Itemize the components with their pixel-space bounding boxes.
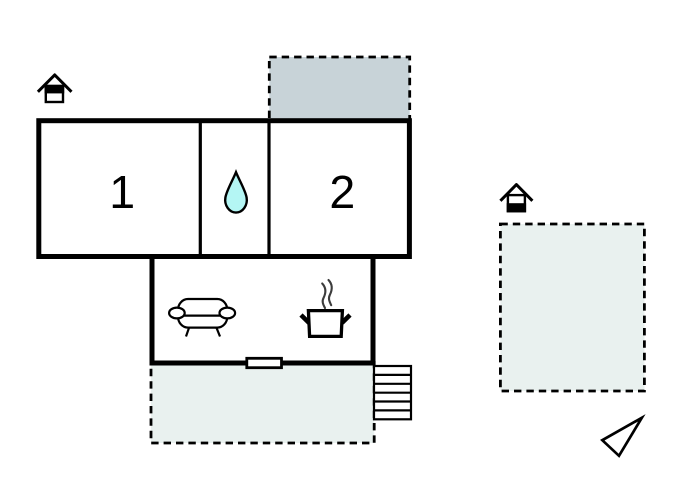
svg-text:1: 1	[109, 166, 135, 218]
svg-text:2: 2	[329, 166, 355, 218]
